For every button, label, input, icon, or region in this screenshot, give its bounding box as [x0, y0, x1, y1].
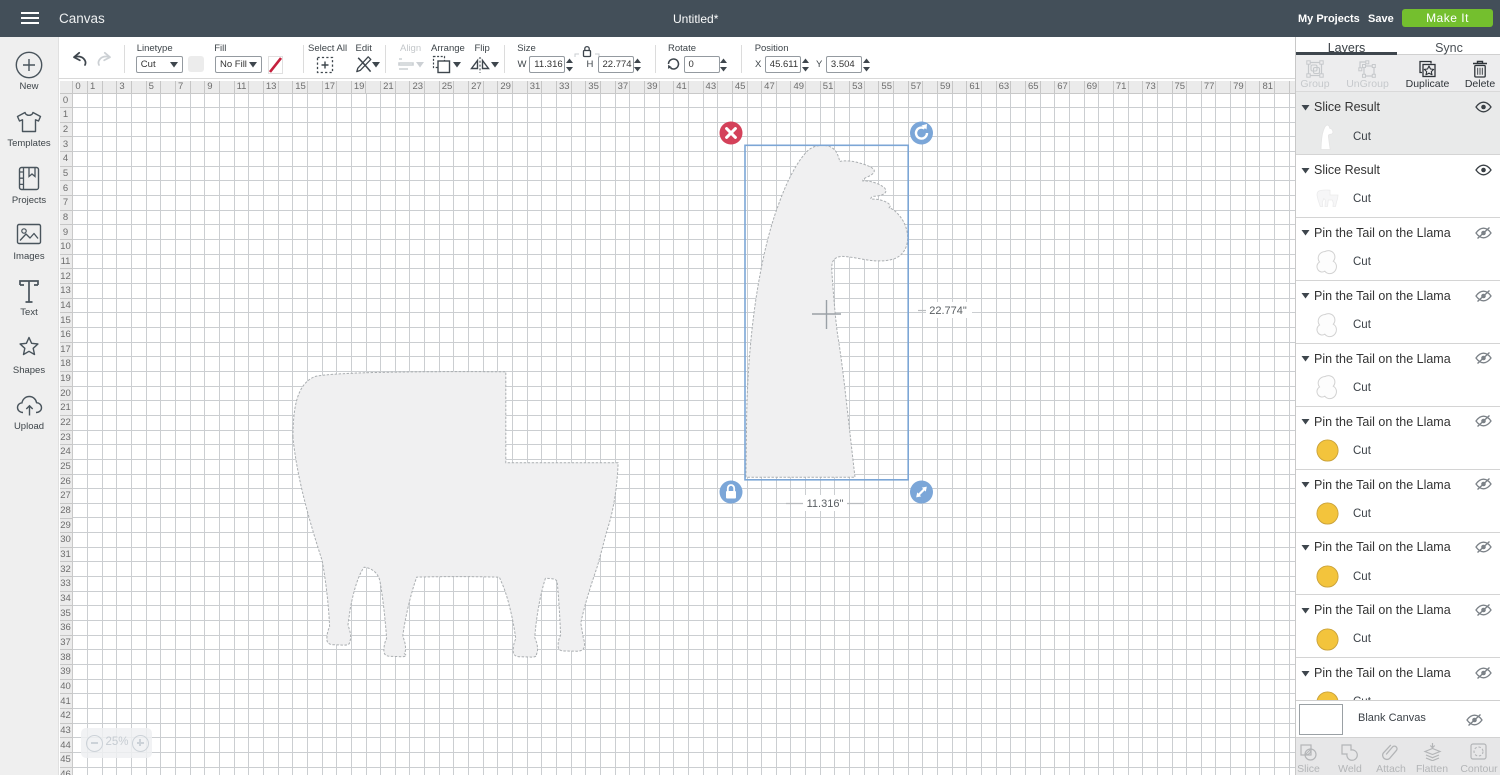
svg-text:11.316": 11.316" — [807, 498, 844, 510]
svg-text:22.774": 22.774" — [929, 305, 967, 317]
